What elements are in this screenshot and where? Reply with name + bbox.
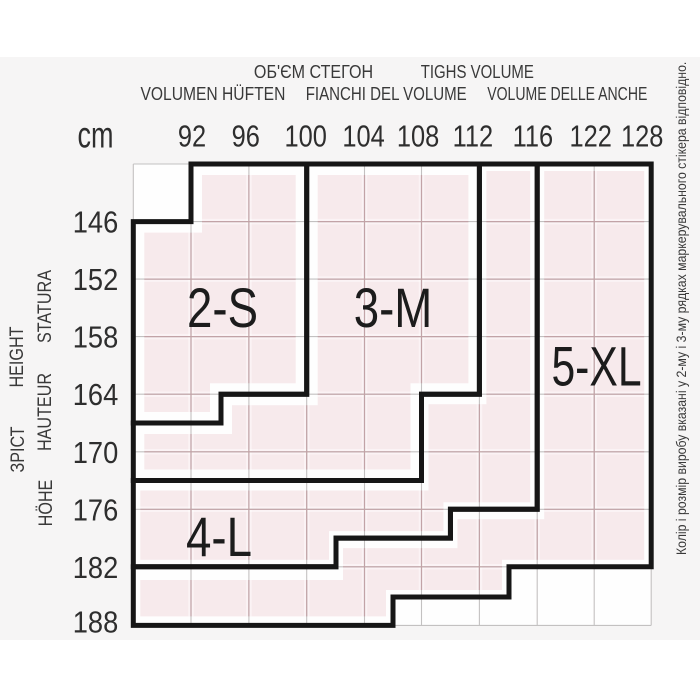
svg-text:128: 128 <box>621 119 663 154</box>
svg-text:4-L: 4-L <box>186 506 252 568</box>
svg-text:5-XL: 5-XL <box>551 335 641 398</box>
svg-text:100: 100 <box>285 119 327 154</box>
svg-text:182: 182 <box>73 551 119 585</box>
svg-text:158: 158 <box>73 321 119 355</box>
svg-text:TIGHS VOLUME: TIGHS VOLUME <box>421 62 534 83</box>
svg-text:188: 188 <box>73 606 119 640</box>
svg-text:Колір і розмір виробу вказані: Колір і розмір виробу вказані у 2-му і 3… <box>673 62 689 555</box>
svg-text:104: 104 <box>342 119 384 154</box>
svg-text:176: 176 <box>73 494 119 528</box>
svg-text:2-S: 2-S <box>187 276 258 338</box>
svg-text:STATURA: STATURA <box>34 270 56 343</box>
svg-text:FIANCHI DEL VOLUME: FIANCHI DEL VOLUME <box>306 84 467 105</box>
svg-text:HAUTEUR: HAUTEUR <box>34 373 56 451</box>
svg-text:VOLUME DELLE ANCHE: VOLUME DELLE ANCHE <box>487 84 647 104</box>
svg-text:116: 116 <box>513 119 554 154</box>
svg-text:92: 92 <box>178 119 206 154</box>
svg-text:164: 164 <box>73 379 119 413</box>
svg-text:152: 152 <box>73 264 119 298</box>
svg-text:146: 146 <box>73 206 119 240</box>
svg-text:HÖHE: HÖHE <box>35 480 57 527</box>
svg-text:ЗРІСТ: ЗРІСТ <box>7 426 29 472</box>
svg-text:3-M: 3-M <box>354 276 433 338</box>
svg-text:112: 112 <box>453 119 494 154</box>
svg-text:108: 108 <box>397 119 439 154</box>
svg-text:170: 170 <box>73 436 119 470</box>
svg-text:96: 96 <box>232 119 260 154</box>
svg-text:ОБ'ЄМ СТЕГОН: ОБ'ЄМ СТЕГОН <box>254 61 373 82</box>
svg-text:122: 122 <box>570 119 612 154</box>
svg-text:cm: cm <box>78 114 114 155</box>
svg-text:VOLUMEN HÜFTEN: VOLUMEN HÜFTEN <box>140 84 285 105</box>
svg-text:HEIGHT: HEIGHT <box>6 326 28 387</box>
